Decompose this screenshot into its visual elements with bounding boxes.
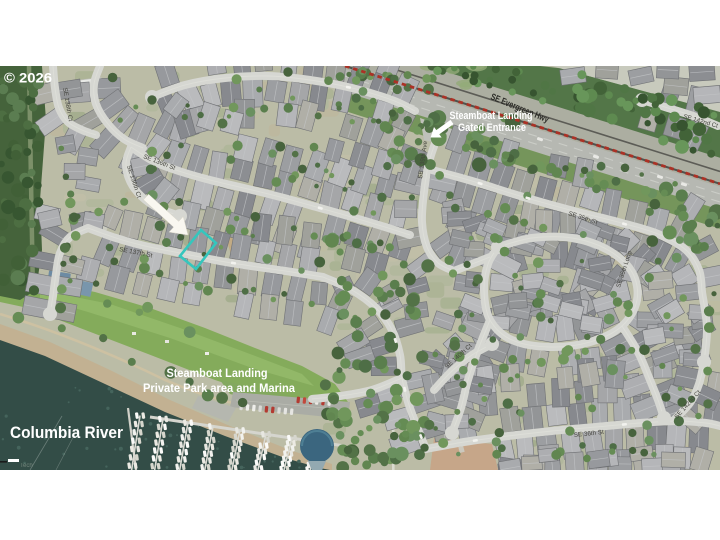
svg-text:Columbia River: Columbia River [10,423,123,442]
svg-text:© 2026: © 2026 [4,70,52,86]
svg-text:Steamboat Landing: Steamboat Landing [167,366,268,380]
svg-text:Private Park area and Marina: Private Park area and Marina [143,381,295,395]
svg-text:Steamboat Landing: Steamboat Landing [450,110,533,122]
svg-text:Gated Entrance: Gated Entrance [458,122,526,134]
svg-text:Tech: Tech [20,463,33,469]
